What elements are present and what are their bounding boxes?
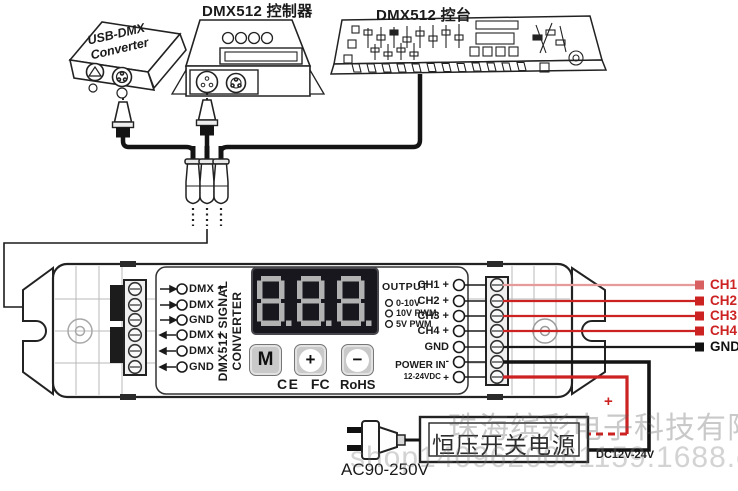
- dmx-in-gnd-label: GND: [189, 314, 214, 326]
- watermark-shop-url: shop1409620061159.1688.com: [350, 441, 738, 475]
- controller-xlr-plug: [197, 100, 218, 136]
- left-mounting-plate: [23, 268, 53, 394]
- controller-title: DMX512 控制器: [202, 0, 313, 21]
- power-voltage-label: 12-24VDC +: [378, 372, 449, 384]
- ch2-terminal-label: CH2 +: [385, 295, 449, 307]
- ch1-terminal-label: CH1 +: [385, 279, 449, 291]
- fcc-mark: FC: [311, 376, 330, 392]
- ch2-wire-label: CH2: [710, 293, 737, 308]
- gnd-terminal-label: GND: [385, 341, 449, 353]
- dmx-out-gnd-label: GND: [189, 361, 214, 373]
- ce-mark: CE: [277, 376, 299, 392]
- ch3-terminal-label: CH3 +: [385, 310, 449, 322]
- power-plus-marker: +: [443, 373, 449, 384]
- device-name-vertical-line2: CONVERTER: [230, 269, 244, 393]
- dmx-in-minus-label: DMX -: [189, 299, 221, 311]
- console-title: DMX512 控台: [376, 4, 471, 25]
- usb-xlr-plug: [113, 102, 134, 138]
- certification-marks: CE FC RoHS: [277, 376, 375, 394]
- hanging-xlr-plugs: [185, 146, 229, 226]
- power-in-label: POWER IN-: [370, 356, 449, 371]
- power-minus-marker: -: [446, 356, 449, 367]
- usb-converter-cable: [123, 135, 193, 152]
- diagram-canvas: DMX512 控制器 DMX512 控台 USB-DMX Converter D…: [0, 0, 738, 491]
- dmx-out-minus-label: DMX -: [189, 345, 221, 357]
- gnd-wire-label: GND: [710, 339, 738, 354]
- ch3-wire-label: CH3: [710, 308, 737, 323]
- dmx512-controller-device: [172, 20, 324, 96]
- ch4-terminal-label: CH4 +: [385, 325, 449, 337]
- dmx-in-plus-label: DMX +: [189, 283, 224, 295]
- ch4-wire-label: CH4: [710, 323, 737, 338]
- ch1-wire-label: CH1: [710, 277, 737, 292]
- mode-button: M: [249, 344, 282, 376]
- seven-segment-display: [252, 268, 378, 334]
- dmx-out-plus-label: DMX +: [189, 329, 224, 341]
- plus-button: +: [294, 344, 327, 376]
- rohs-mark: RoHS: [340, 377, 375, 392]
